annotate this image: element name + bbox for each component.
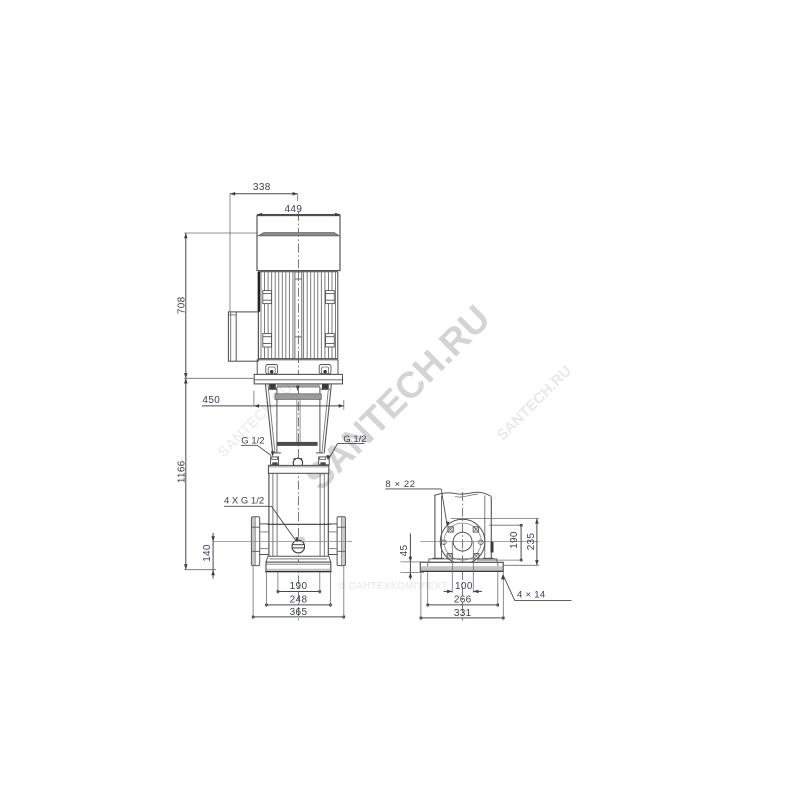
- svg-text:331: 331: [454, 608, 472, 619]
- svg-text:8 × 22: 8 × 22: [385, 479, 415, 490]
- svg-text:338: 338: [253, 182, 271, 193]
- svg-text:365: 365: [290, 607, 308, 618]
- svg-text:449: 449: [285, 204, 303, 215]
- svg-text:248: 248: [290, 595, 308, 606]
- svg-text:100: 100: [455, 581, 473, 592]
- svg-text:235: 235: [526, 533, 537, 551]
- svg-text:1166: 1166: [176, 460, 187, 483]
- svg-text:190: 190: [290, 581, 308, 592]
- svg-text:708: 708: [176, 296, 187, 314]
- svg-text:190: 190: [509, 531, 520, 549]
- svg-text:4 X G 1/2: 4 X G 1/2: [224, 495, 264, 506]
- svg-text:450: 450: [202, 395, 220, 406]
- svg-text:45: 45: [399, 545, 410, 557]
- svg-text:© САНТЕХКОМПЛЕКТ: © САНТЕХКОМПЛЕКТ: [338, 581, 448, 592]
- svg-text:266: 266: [454, 595, 472, 606]
- svg-text:140: 140: [202, 544, 213, 562]
- svg-text:4 × 14: 4 × 14: [517, 589, 545, 600]
